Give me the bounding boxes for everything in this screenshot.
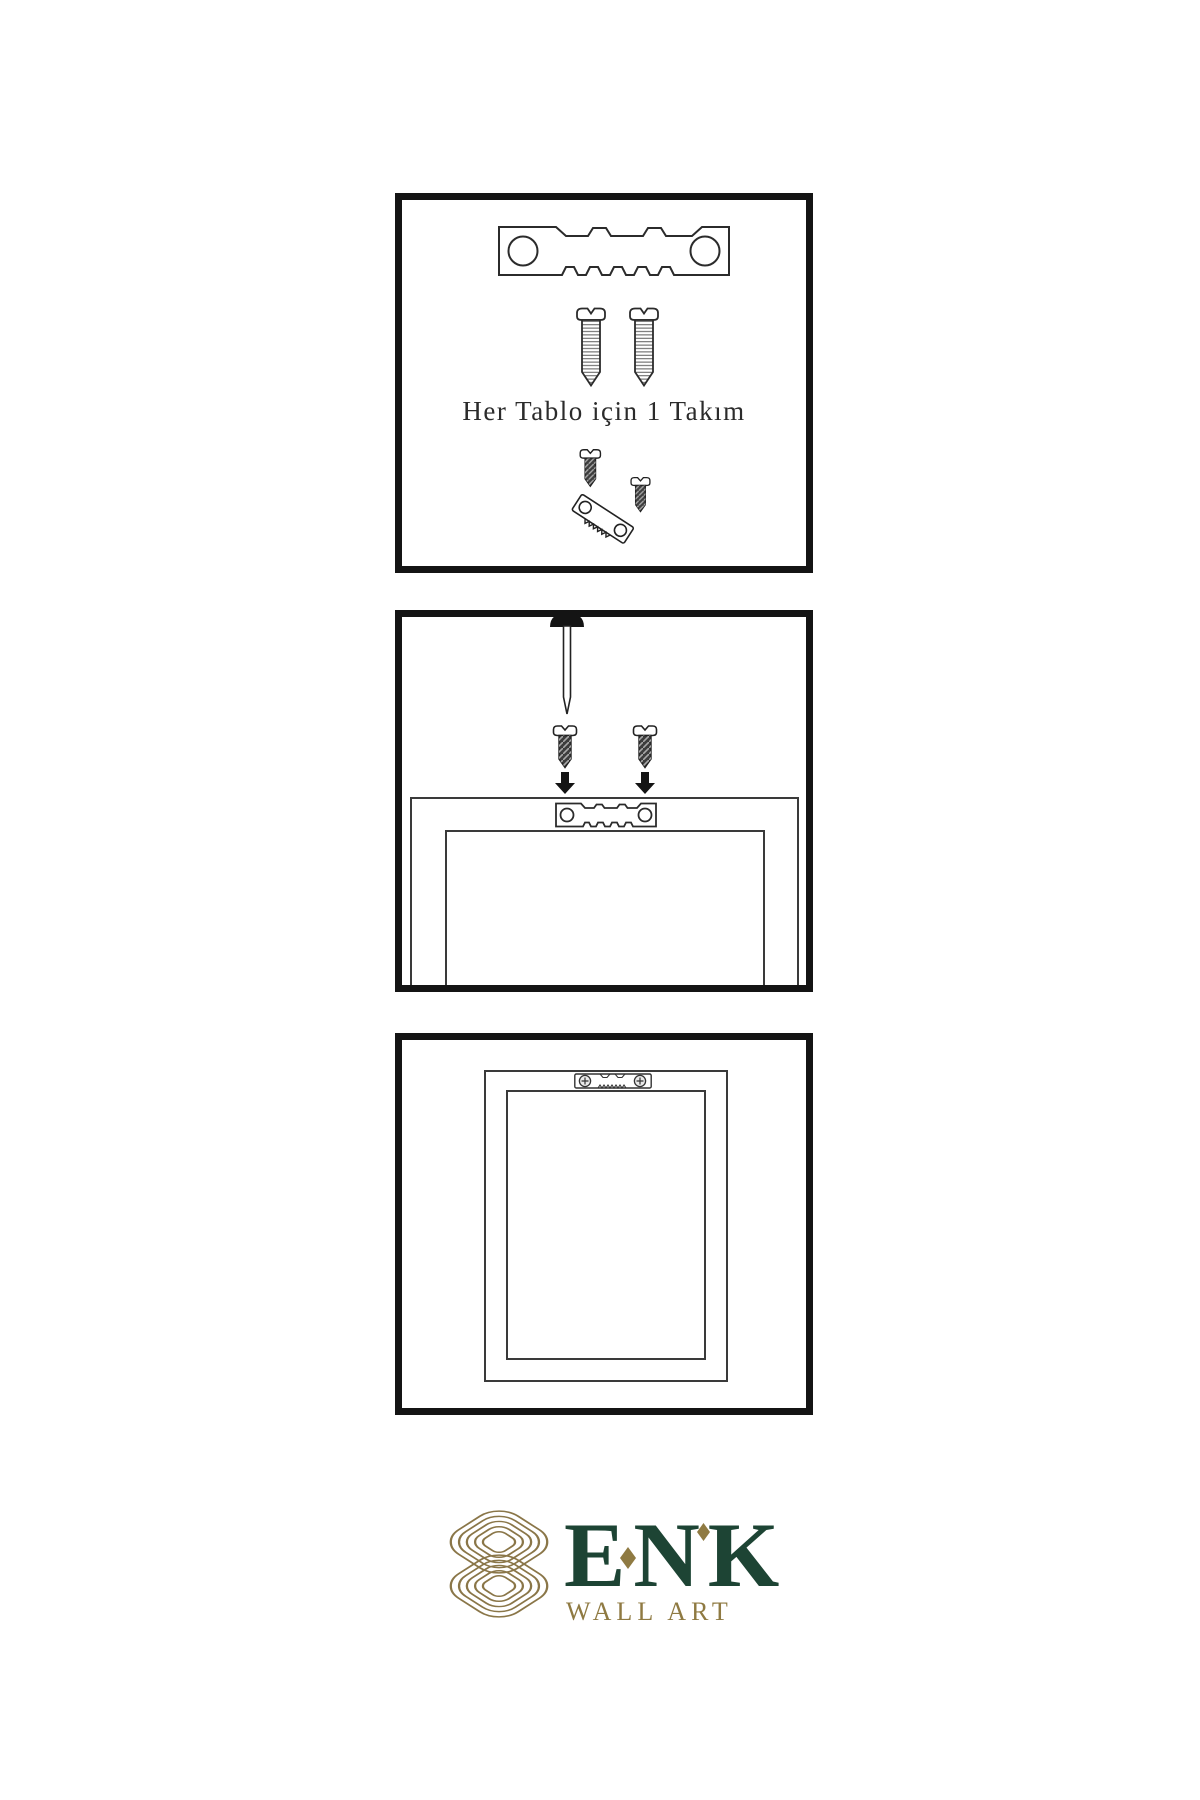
screw-into-hanger-icon <box>572 448 660 554</box>
brand-subtitle: WALL ART <box>566 1597 733 1627</box>
screw-icon <box>627 306 661 388</box>
down-arrow-icon <box>555 772 575 794</box>
panel-hardware-kit: Her Tablo için 1 Takım <box>395 193 813 573</box>
screw-icon <box>574 306 608 388</box>
dark-screw-icon <box>551 724 579 770</box>
brand-name: ENK <box>564 1509 787 1601</box>
knot-logo-icon <box>437 1500 561 1628</box>
sawtooth-hanger-icon <box>555 802 657 828</box>
diamond-accent-icon <box>697 1523 710 1541</box>
down-arrow-icon <box>635 772 655 794</box>
mounted-sawtooth-hanger-icon <box>574 1072 652 1090</box>
dark-screw-icon <box>631 724 659 770</box>
frame-back-inner <box>506 1090 706 1360</box>
panel-attach-hanger <box>395 610 813 992</box>
instruction-sheet: Her Tablo için 1 Takım <box>0 0 1200 1800</box>
frame-back-inner <box>445 830 765 985</box>
diamond-accent-icon <box>620 1547 636 1569</box>
wall-nail-icon <box>547 611 587 719</box>
sawtooth-hanger-icon <box>498 225 730 277</box>
panel-hung-frame <box>395 1033 813 1415</box>
kit-caption: Her Tablo için 1 Takım <box>402 396 806 427</box>
